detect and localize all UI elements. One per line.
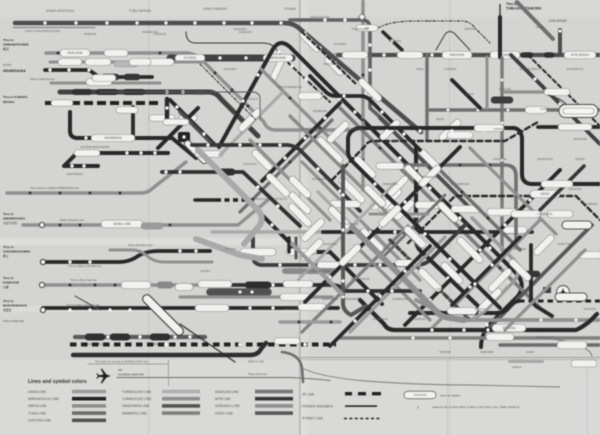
- svg-text:SHIMBASHI: SHIMBASHI: [392, 297, 408, 301]
- svg-text:Thru to: Thru to: [3, 245, 14, 249]
- svg-text:NIHOMBASHI: NIHOMBASHI: [451, 182, 470, 186]
- svg-text:KANAMACHI: KANAMACHI: [567, 67, 584, 71]
- svg-text:OSHIAGE: OSHIAGE: [494, 127, 507, 131]
- svg-text:250: 250: [118, 368, 123, 372]
- svg-text:NAGATACHO: NAGATACHO: [341, 222, 360, 226]
- svg-text:HIBARIGAOKA: HIBARIGAOKA: [3, 217, 26, 221]
- svg-text:HARAJUKU: HARAJUKU: [252, 197, 267, 201]
- svg-text:UENO: UENO: [436, 117, 445, 121]
- svg-text:AOTO: AOTO: [536, 25, 545, 29]
- svg-text:IIDABASHI: IIDABASHI: [313, 109, 327, 113]
- svg-text:SUGAMO: SUGAMO: [224, 67, 238, 71]
- svg-text:KITA-AYASE: KITA-AYASE: [549, 19, 567, 23]
- svg-text:Lines and symbol colors: Lines and symbol colors: [28, 379, 87, 385]
- svg-text:SHIMO-AKATSUKA: SHIMO-AKATSUKA: [46, 9, 75, 13]
- svg-text:MINAMI-SENJU: MINAMI-SENJU: [520, 67, 540, 71]
- svg-text:HANZOMON LINE: HANZOMON LINE: [122, 404, 150, 408]
- svg-text:SHINJUKU LINE: SHINJUKU LINE: [215, 404, 241, 408]
- svg-text:ITABASHI: ITABASHI: [84, 32, 97, 36]
- svg-text:OTSUKA: OTSUKA: [194, 92, 206, 96]
- svg-text:MITAKA: MITAKA: [3, 100, 15, 104]
- svg-text:KOTA: KOTA: [3, 63, 11, 67]
- svg-text:SUMIYOSHI: SUMIYOSHI: [557, 242, 573, 246]
- svg-text:YOTSUYA: YOTSUYA: [273, 197, 287, 201]
- svg-text:HIBIYA LINE: HIBIYA LINE: [28, 404, 47, 408]
- svg-text:MARUNOUCHI LINE: MARUNOUCHI LINE: [28, 397, 60, 401]
- svg-text:MACHIYA: MACHIYA: [450, 53, 465, 57]
- svg-text:Thru to: Thru to: [3, 38, 14, 42]
- svg-text:transfer station: transfer station: [440, 394, 461, 398]
- svg-text:JIMBOCHO: JIMBOCHO: [382, 182, 398, 186]
- svg-text:CHICHIBU/HANNO: CHICHIBU/HANNO: [3, 250, 31, 254]
- svg-text:NAMBOKU LINE: NAMBOKU LINE: [122, 411, 148, 415]
- svg-text:SENDAGI: SENDAGI: [389, 39, 402, 43]
- svg-text:AKASAKA: AKASAKA: [323, 242, 337, 246]
- svg-text:YURAKUCHO LINE: YURAKUCHO LINE: [122, 397, 152, 401]
- svg-text:Thru trains on SEIBU-IKEBUKURO: Thru trains on SEIBU-IKEBUKURO line: [30, 186, 79, 190]
- svg-text:STATION: STATION: [414, 393, 427, 397]
- svg-text:AOYAMA: AOYAMA: [244, 287, 256, 291]
- svg-text:HIKAWADAI: HIKAWADAI: [104, 136, 122, 140]
- svg-text:Seibu-Ikebukuro line: Seibu-Ikebukuro line: [128, 243, 153, 247]
- svg-text:Heliport: Heliport: [512, 365, 522, 369]
- svg-text:SHIMURA: SHIMURA: [234, 27, 247, 31]
- svg-text:Thru to Keio line: Thru to Keio line: [3, 319, 24, 323]
- svg-text:OYAMA: OYAMA: [284, 7, 296, 11]
- svg-text:MUSASHISAKAI: MUSASHISAKAI: [3, 304, 27, 308]
- svg-text:ICHIGAYA: ICHIGAYA: [243, 162, 256, 166]
- svg-text:ひばりが丘: ひばりが丘: [3, 221, 17, 225]
- svg-text:MINAMI-SUNA: MINAMI-SUNA: [536, 335, 555, 339]
- svg-text:NEZU: NEZU: [416, 67, 424, 71]
- svg-text:SHIN-KIBA: SHIN-KIBA: [480, 350, 494, 354]
- svg-text:武蔵境: 武蔵境: [3, 308, 12, 312]
- svg-text:TSUKIJI: TSUKIJI: [475, 307, 486, 311]
- svg-text:Thru to: Thru to: [3, 299, 14, 303]
- svg-text:KAWAGOE: KAWAGOE: [3, 281, 19, 285]
- svg-text:KIKUKAWA: KIKUKAWA: [537, 212, 552, 216]
- svg-text:JR LINE: JR LINE: [302, 393, 315, 397]
- svg-text:KAMI-ITABASHI: KAMI-ITABASHI: [203, 7, 226, 11]
- svg-text:PRIVATE RAILWAYS: PRIVATE RAILWAYS: [302, 405, 334, 409]
- svg-text:柴又: 柴又: [3, 46, 9, 51]
- svg-text:URAYASU: URAYASU: [583, 307, 596, 311]
- svg-text:(stations with a Post Office: (stations with a Post Office Guide to Ol…: [432, 405, 519, 409]
- svg-text:HIKARIGAOKA: HIKARIGAOKA: [3, 69, 27, 73]
- svg-text:MUKODAI: MUKODAI: [68, 51, 83, 55]
- svg-text:Seibu-Shinjuku line: Seibu-Shinjuku line: [60, 218, 84, 222]
- svg-text:KASAI: KASAI: [526, 350, 534, 354]
- svg-text:SENKAWA: SENKAWA: [270, 56, 287, 60]
- svg-text:秩父: 秩父: [3, 254, 9, 258]
- svg-text:TABATA: TABATA: [425, 19, 435, 23]
- svg-text:SHIBAMATA/SDN: SHIBAMATA/SDN: [3, 43, 29, 47]
- svg-text:TOZAI LINE: TOZAI LINE: [28, 411, 47, 415]
- svg-text:KINSHICHO: KINSHICHO: [537, 157, 553, 161]
- svg-text:SHIBUYA: SHIBUYA: [284, 307, 297, 311]
- svg-text:SUGAMO: SUGAMO: [334, 42, 347, 46]
- svg-text:GOKOKUJI: GOKOKUJI: [243, 97, 258, 101]
- svg-text:Thru to: Thru to: [3, 276, 14, 280]
- svg-text:Thru to Tobu-Tojo line: Thru to Tobu-Tojo line: [70, 278, 97, 282]
- svg-text:Thru to: Thru to: [3, 212, 14, 216]
- svg-text:TORANOMON: TORANOMON: [341, 297, 359, 301]
- svg-text:SEIBU LINE: SEIBU LINE: [113, 222, 131, 226]
- svg-text:KOMAGOME: KOMAGOME: [352, 27, 369, 31]
- svg-text:Thru to Seibu-Chichibu line: Thru to Seibu-Chichibu line: [68, 264, 102, 268]
- svg-text:HONCHO: HONCHO: [154, 32, 167, 36]
- svg-text:IRIYA: IRIYA: [466, 92, 473, 96]
- svg-text:Seibu-Yurakucho line: Seibu-Yurakucho line: [30, 77, 55, 81]
- svg-text:KOTAKE-MUKAIHARA: KOTAKE-MUKAIHARA: [81, 145, 110, 149]
- svg-text:YOYOGI: YOYOGI: [224, 247, 235, 251]
- svg-text:SAKURADAI: SAKURADAI: [67, 172, 83, 176]
- svg-text:OSHIAGE: OSHIAGE: [568, 187, 581, 191]
- svg-text:KOJIMACHI: KOJIMACHI: [312, 177, 328, 181]
- svg-text:OTEMACHI: OTEMACHI: [422, 175, 437, 179]
- svg-text:TORANOMON: TORANOMON: [350, 277, 369, 281]
- svg-text:KEIKYU LINE: KEIKYU LINE: [248, 360, 264, 364]
- svg-text:ASAKUSA: ASAKUSA: [493, 157, 507, 161]
- svg-text:AYASE: AYASE: [540, 107, 549, 111]
- svg-text:YURAKUCHO LINE: YURAKUCHO LINE: [122, 390, 152, 394]
- svg-text:MONZEN: MONZEN: [514, 247, 527, 251]
- svg-text:AOYAMA-ITCHOME: AOYAMA-ITCHOME: [305, 269, 331, 273]
- svg-text:HONGO: HONGO: [390, 139, 402, 143]
- svg-text:川越: 川越: [3, 285, 9, 289]
- svg-text:NISHIGAHARA: NISHIGAHARA: [310, 15, 329, 19]
- svg-text:OKUBO: OKUBO: [200, 269, 211, 273]
- svg-text:NISHI-TAKASHIMADAIRA: NISHI-TAKASHIMADAIRA: [25, 29, 60, 33]
- svg-text:KITA-SENJU: KITA-SENJU: [571, 53, 590, 57]
- svg-text:MITA LINE: MITA LINE: [215, 397, 231, 401]
- svg-text:TOBU-NERIMA: TOBU-NERIMA: [129, 9, 152, 13]
- svg-text:HIKIFUNE: HIKIFUNE: [573, 137, 587, 141]
- svg-text:UENO: UENO: [540, 192, 550, 196]
- svg-text:NIPPORI: NIPPORI: [464, 27, 476, 31]
- svg-text:KORAKUEN: KORAKUEN: [347, 127, 363, 131]
- svg-text:SUIDOBASHI: SUIDOBASHI: [301, 127, 318, 131]
- svg-text:MINOWA: MINOWA: [499, 87, 511, 91]
- svg-text:DAIMON: DAIMON: [414, 317, 425, 321]
- svg-text:FUNABORI: FUNABORI: [583, 202, 598, 206]
- svg-text:OEDO LINE: OEDO LINE: [215, 411, 234, 415]
- svg-text:EDOGAWABASHI: EDOGAWABASHI: [278, 85, 302, 89]
- svg-text:Thru to KAWADA: Thru to KAWADA: [3, 95, 28, 99]
- svg-text:ROPPONGI: ROPPONGI: [322, 297, 338, 301]
- svg-text:Thru to Seibu-Shinjuku line: Thru to Seibu-Shinjuku line: [66, 303, 100, 307]
- svg-text:HAKUSAN: HAKUSAN: [323, 62, 337, 66]
- svg-text:STREET CAR: STREET CAR: [302, 417, 323, 421]
- svg-text:HANEDA AIRPORT: HANEDA AIRPORT: [118, 373, 144, 377]
- svg-text:KEISEI: KEISEI: [575, 157, 584, 161]
- svg-text:Tokyo Monorail: Tokyo Monorail: [248, 372, 267, 376]
- svg-text:ASAKUSA LINE: ASAKUSA LINE: [215, 390, 239, 394]
- svg-text:TATSUMI: TATSUMI: [439, 350, 451, 354]
- svg-text:GINZA LINE: GINZA LINE: [28, 390, 47, 394]
- svg-text:CHIYODA LINE: CHIYODA LINE: [28, 419, 52, 423]
- svg-text:ONARIMON: ONARIMON: [372, 317, 387, 321]
- svg-text:YUSHIMA: YUSHIMA: [444, 67, 457, 71]
- svg-text:KOTAKE: KOTAKE: [184, 56, 197, 60]
- svg-text:GINZA: GINZA: [436, 287, 445, 291]
- svg-text:This trains do not stop at HAN: This trains do not stop at HANEDA-KUKO l…: [95, 360, 148, 364]
